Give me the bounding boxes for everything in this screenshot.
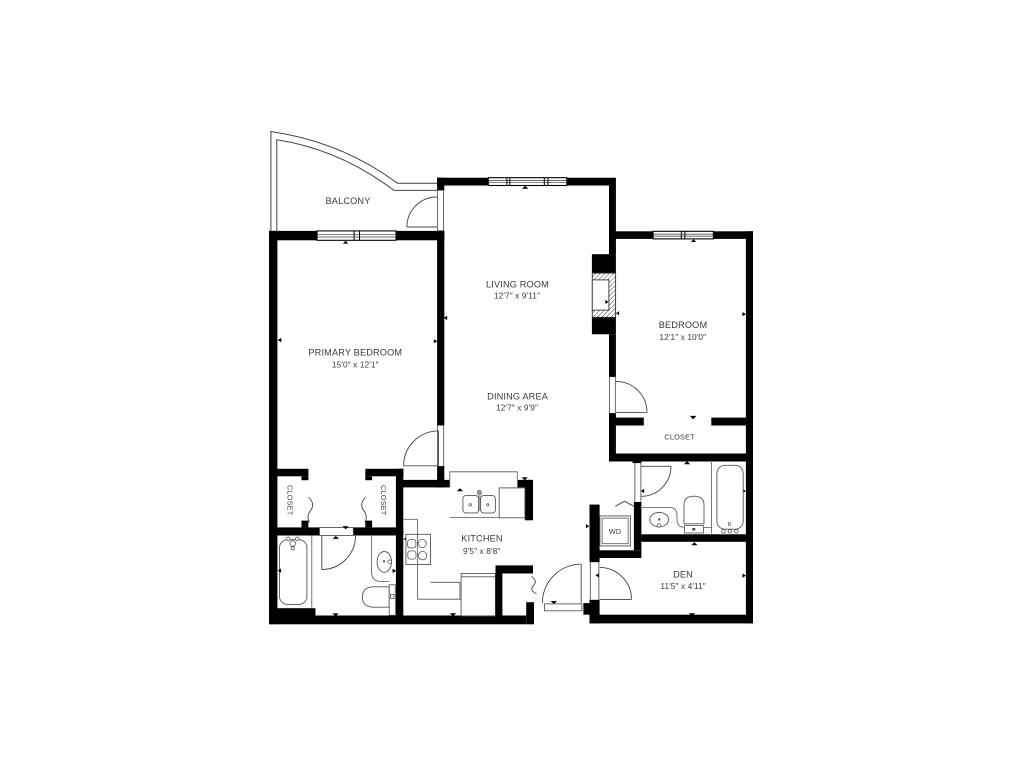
svg-text:CLOSET: CLOSET bbox=[286, 485, 295, 516]
svg-text:CLOSET: CLOSET bbox=[664, 433, 695, 442]
svg-text:9′5″ x 8′8″: 9′5″ x 8′8″ bbox=[463, 546, 500, 556]
svg-text:12′7″ x 9′11″: 12′7″ x 9′11″ bbox=[494, 290, 540, 300]
svg-text:R: R bbox=[728, 522, 732, 528]
svg-text:BEDROOM: BEDROOM bbox=[659, 320, 708, 330]
svg-text:PRIMARY BEDROOM: PRIMARY BEDROOM bbox=[308, 348, 402, 358]
svg-text:12′7″ x 9′9″: 12′7″ x 9′9″ bbox=[496, 403, 538, 413]
svg-text:LIVING ROOM: LIVING ROOM bbox=[486, 279, 549, 289]
svg-text:DEN: DEN bbox=[673, 570, 693, 580]
svg-text:CLOSET: CLOSET bbox=[379, 485, 388, 516]
svg-text:15′0″ x 12′1″: 15′0″ x 12′1″ bbox=[332, 359, 379, 369]
svg-text:12′1″ x 10′0″: 12′1″ x 10′0″ bbox=[659, 332, 706, 342]
svg-text:11′5″ x 4′11″: 11′5″ x 4′11″ bbox=[660, 581, 706, 591]
svg-text:WD: WD bbox=[609, 527, 621, 536]
svg-text:KITCHEN: KITCHEN bbox=[461, 534, 502, 544]
svg-text:BALCONY: BALCONY bbox=[326, 196, 371, 206]
svg-text:DINING AREA: DINING AREA bbox=[487, 392, 549, 402]
